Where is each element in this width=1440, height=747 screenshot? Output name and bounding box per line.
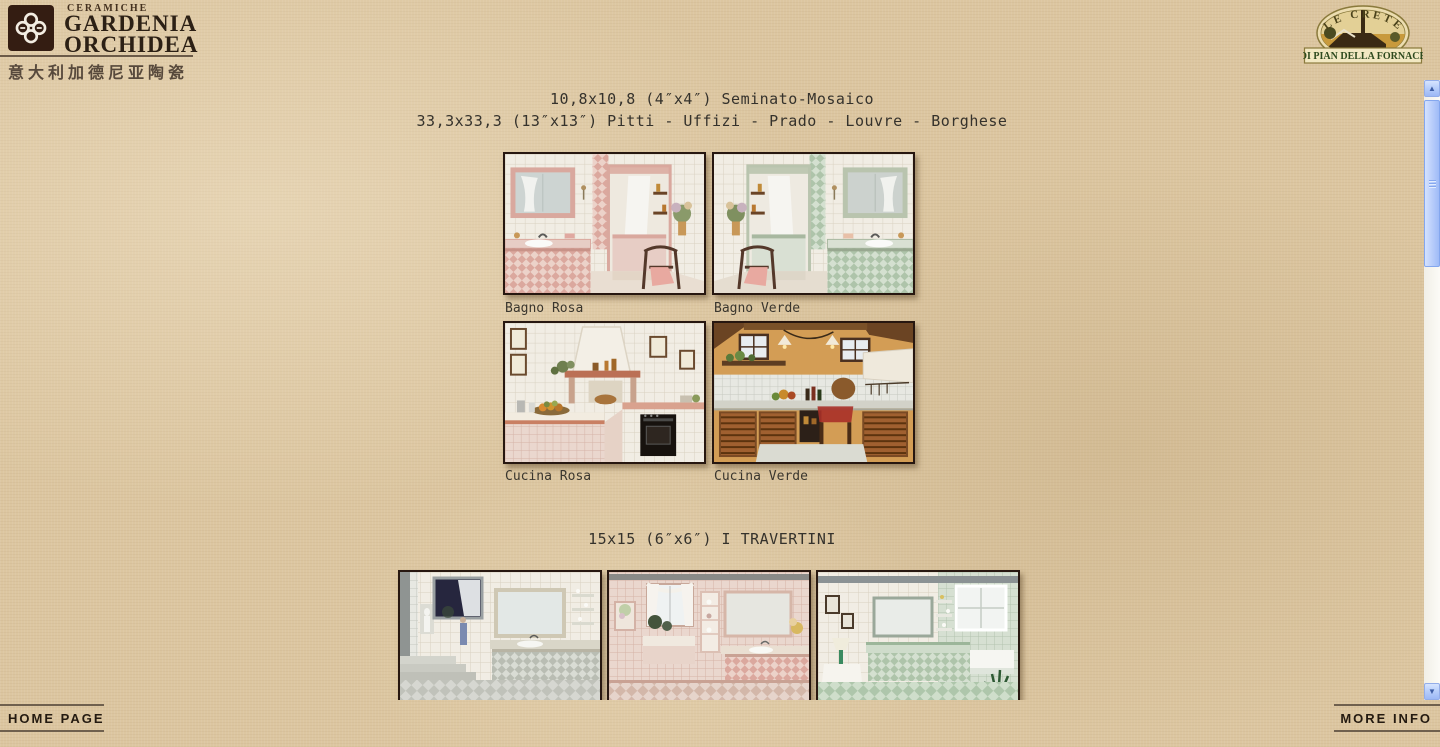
badge-banner-text: DI PIAN DELLA FORNACE xyxy=(1303,51,1423,62)
scrollbar-thumb[interactable] xyxy=(1424,100,1440,267)
bagno-verde-illustration xyxy=(714,154,913,293)
caption-bagno-rosa: Bagno Rosa xyxy=(505,301,583,316)
more-info-link[interactable]: MORE INFO xyxy=(1334,704,1440,732)
photo-bagno-verde xyxy=(712,152,915,295)
le-crete-badge: LE CRETE DI PIAN DELLA FORNACE xyxy=(1303,4,1423,66)
photo-cucina-verde xyxy=(712,321,915,464)
cucina-verde-illustration xyxy=(714,323,913,462)
travertini-green-illustration xyxy=(818,572,1018,700)
le-crete-badge-illustration: LE CRETE DI PIAN DELLA FORNACE xyxy=(1303,4,1423,66)
photo-cucina-rosa xyxy=(503,321,706,464)
caption-cucina-rosa: Cucina Rosa xyxy=(505,469,591,484)
photo-bagno-rosa xyxy=(503,152,706,295)
scroll-down-button[interactable]: ▼ xyxy=(1424,683,1440,700)
mosaico-heading-line1: 10,8x10,8 (4″x4″) Seminato-Mosaico xyxy=(0,90,1424,108)
home-page-link[interactable]: HOME PAGE xyxy=(0,704,104,732)
scroll-up-button[interactable]: ▲ xyxy=(1424,80,1440,97)
bagno-rosa-illustration xyxy=(505,154,704,293)
scroll-down-icon: ▼ xyxy=(1428,687,1436,696)
travertini-pink-illustration xyxy=(609,572,809,700)
brand-divider xyxy=(0,55,193,57)
scroll-up-icon: ▲ xyxy=(1428,84,1436,93)
mosaico-heading-line2: 33,3x33,3 (13″x13″) Pitti - Uffizi - Pra… xyxy=(0,112,1424,130)
caption-bagno-verde: Bagno Verde xyxy=(714,301,800,316)
travertini-heading: 15x15 (6″x6″) I TRAVERTINI xyxy=(0,530,1424,548)
caption-cucina-verde: Cucina Verde xyxy=(714,469,808,484)
cucina-rosa-illustration xyxy=(505,323,704,462)
vertical-scrollbar[interactable]: ▲ ▼ xyxy=(1424,80,1440,700)
travertini-grey-illustration xyxy=(400,572,600,700)
scrollbar-thumb-grip xyxy=(1429,180,1436,189)
photo-travertini-green xyxy=(816,570,1020,700)
content-frame: 10,8x10,8 (4″x4″) Seminato-Mosaico 33,3x… xyxy=(0,80,1424,700)
photo-travertini-pink xyxy=(607,570,811,700)
footer-frame: HOME PAGE MORE INFO xyxy=(0,700,1440,747)
header-frame: CERAMICHE GARDENIA ORCHIDEA 意大利加德尼亚陶瓷 LE… xyxy=(0,0,1440,80)
photo-travertini-grey xyxy=(398,570,602,700)
gardenia-rosette-icon xyxy=(8,5,54,51)
